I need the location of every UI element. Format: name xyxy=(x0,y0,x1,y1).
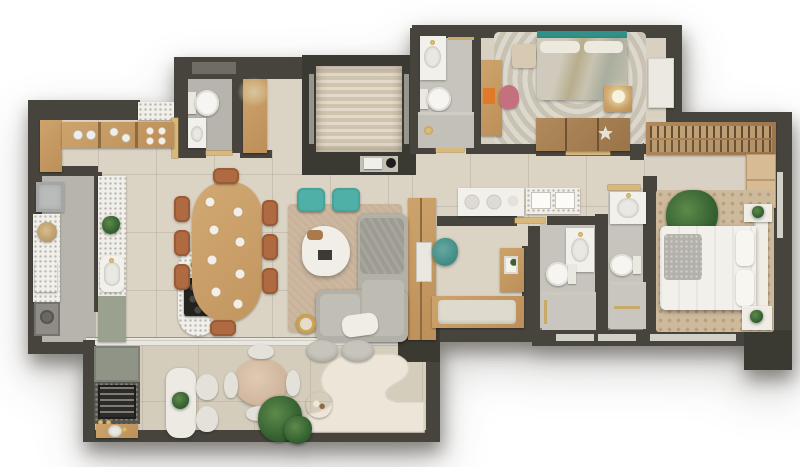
bedroom2-closet-unit xyxy=(536,118,630,151)
kitchen-faucet xyxy=(109,258,114,263)
balcony-sink-basin xyxy=(108,425,122,437)
powder-door-leaf xyxy=(206,151,232,155)
window-master-right xyxy=(777,172,783,238)
elevator-glass-door-left xyxy=(309,74,314,144)
kitchen-sink-basin xyxy=(104,262,120,286)
bathB-toilet-tank xyxy=(633,256,641,274)
wall-office-bottom xyxy=(424,326,536,342)
kitchen-corner-counter xyxy=(40,120,62,172)
wall-powder-bottom xyxy=(176,148,206,158)
office-bench-cushion xyxy=(438,300,516,324)
bedroom2-lamp xyxy=(612,90,625,103)
entry-threshold xyxy=(138,102,174,120)
kitchen-lower-cabinet xyxy=(98,296,126,342)
bedroom2-pillow-1 xyxy=(540,41,580,53)
vanity-tray-1 xyxy=(531,192,551,209)
bathA-door-leaf xyxy=(515,218,545,223)
hallbath-shower-glass xyxy=(418,112,474,115)
laundry-washer-door xyxy=(40,310,54,324)
dining-chair-right-1 xyxy=(262,200,278,226)
wall-bathAB-divider xyxy=(595,214,608,332)
bathA-towel-bar xyxy=(544,300,547,324)
balcony-tray-table xyxy=(306,392,332,418)
bathB-faucet xyxy=(626,193,631,198)
wall-hall-bottom xyxy=(437,216,517,226)
master-pillow-1 xyxy=(736,230,754,266)
balcony-sink-faucet xyxy=(122,427,127,432)
sofa-chaise-throw xyxy=(360,218,404,274)
window-master xyxy=(650,334,736,341)
bathA-toilet-tank xyxy=(568,264,576,284)
office-shelf-frame xyxy=(504,256,518,274)
balcony-pouf-2 xyxy=(341,340,374,362)
bathA-faucet xyxy=(578,232,583,237)
living-pouf-teal-1 xyxy=(297,188,325,212)
dining-chair-right-2 xyxy=(262,234,278,260)
bedroom2-bed-headboard xyxy=(537,31,627,38)
bathA-toilet-bowl xyxy=(546,262,570,286)
elevator-cab-floor xyxy=(316,66,402,152)
bedroom2-pillow-2 xyxy=(584,41,623,53)
grill-cabinet-sage xyxy=(94,346,140,382)
master-headboard xyxy=(754,220,768,316)
coffee-table-books xyxy=(318,250,332,260)
round-table-chair-n xyxy=(248,344,274,359)
bedroom2-desk-art xyxy=(483,88,495,104)
bathB-basin xyxy=(617,198,639,218)
bar-chair-1 xyxy=(196,374,218,400)
laundry-steel-sink xyxy=(36,182,64,212)
kitchen-upper-shelf xyxy=(62,122,174,148)
dining-chair-left-2 xyxy=(174,230,190,256)
bedroom2-bench xyxy=(512,44,536,68)
closet-hanging-clothes-row1 xyxy=(650,126,772,138)
bedroom2-wardrobe xyxy=(648,58,674,108)
intercom-panel xyxy=(364,158,382,169)
hallbath-faucet xyxy=(430,40,435,45)
bathA-basin xyxy=(571,238,589,262)
office-teal-chair xyxy=(432,238,458,266)
wall-kitchen-top xyxy=(28,100,140,120)
vanity-tray-2 xyxy=(555,192,575,209)
floor-plan-image xyxy=(0,0,800,467)
wall-corner-protrusion xyxy=(744,330,792,370)
window-bath-a xyxy=(556,334,594,341)
bathB-towel-bar xyxy=(614,306,640,309)
hallbath-toilet-bowl xyxy=(427,87,451,111)
coffee-table-leather-detail xyxy=(307,230,323,240)
powder-wall-niche xyxy=(192,62,236,74)
dining-chair-right-3 xyxy=(262,268,278,294)
hallbath-towel-bar xyxy=(448,37,474,40)
round-table-chair-w xyxy=(224,372,238,398)
hallbath-basin xyxy=(424,46,441,68)
grill-grate xyxy=(100,387,134,417)
intercom-knob xyxy=(386,158,396,168)
elevator-glass-door-right xyxy=(404,74,409,144)
hallbath-shower-head xyxy=(424,126,433,135)
entry-dried-arrangement xyxy=(237,77,271,107)
master-pillow-2 xyxy=(736,270,754,306)
wall-laundry-top xyxy=(28,166,98,176)
bar-chair-2 xyxy=(196,406,218,432)
dining-table xyxy=(192,182,262,322)
bathB-door-leaf xyxy=(608,185,640,190)
powder-sink-basin xyxy=(191,126,203,142)
living-side-table-gold xyxy=(296,314,316,334)
closet-hanging-clothes-row2 xyxy=(650,140,772,152)
laundry-basket xyxy=(37,222,57,242)
bedroom2-desk-chair xyxy=(499,85,519,109)
powder-toilet-bowl xyxy=(195,90,219,116)
dining-chair-left-3 xyxy=(174,264,190,290)
wall-bed2-bottom-left xyxy=(480,144,540,154)
dining-chair-bottom xyxy=(210,320,236,336)
living-pouf-teal-2 xyxy=(332,188,360,212)
dining-chair-top xyxy=(213,168,239,184)
window-bath-b xyxy=(598,334,636,341)
wall-bathA-top xyxy=(547,216,597,225)
hallway-sideboard xyxy=(458,188,524,216)
dining-chair-left-1 xyxy=(174,196,190,222)
apartment-plan xyxy=(0,0,800,467)
office-desk-organizer xyxy=(416,242,432,282)
balcony-pouf-1 xyxy=(306,340,338,362)
laundry-wicker-cubbies xyxy=(35,262,57,292)
bathB-toilet-bowl xyxy=(610,254,634,276)
bathA-shower-floor xyxy=(542,295,596,330)
master-gray-throw xyxy=(664,234,702,280)
